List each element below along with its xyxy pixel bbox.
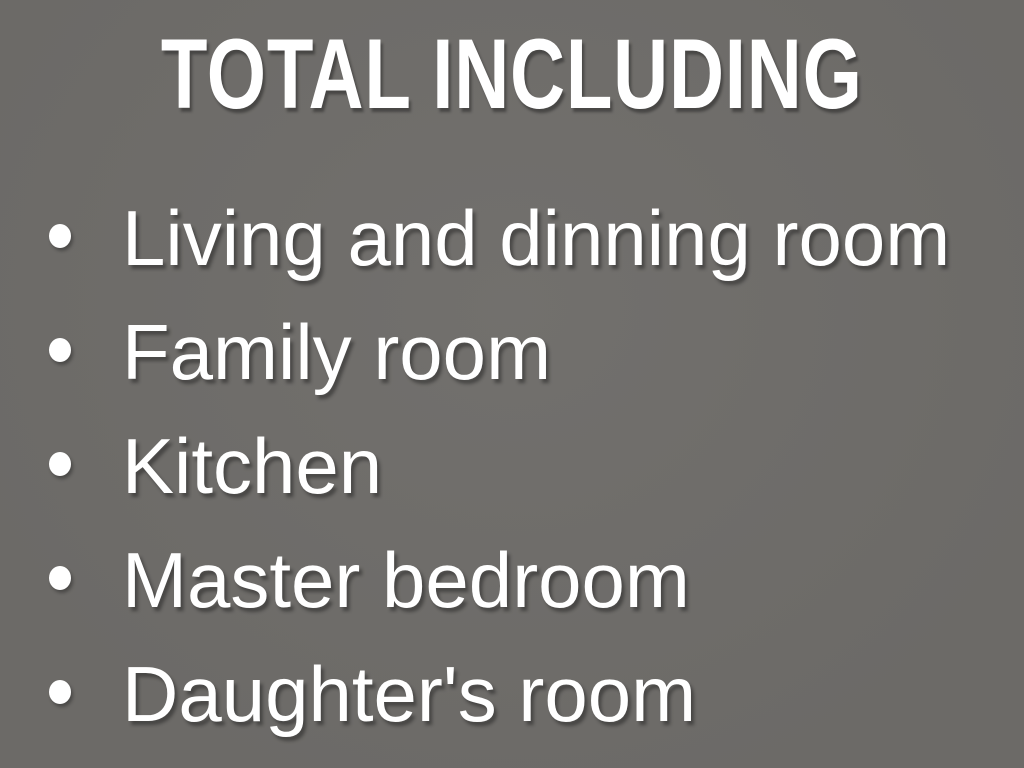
slide-title-text: TOTAL INCLUDING [161, 24, 863, 123]
list-item: Daughter's room [49, 637, 1014, 751]
bullet-dot-icon [49, 566, 71, 590]
bullet-dot-icon [49, 338, 71, 362]
bullet-list: Living and dinning room Family room Kitc… [49, 181, 1014, 751]
bullet-label: Kitchen [122, 427, 382, 505]
bullet-label: Family room [122, 313, 551, 391]
list-item: Living and dinning room [49, 181, 1014, 295]
bullet-label: Master bedroom [122, 541, 690, 619]
bullet-label: Living and dinning room [122, 199, 950, 277]
presentation-slide: TOTAL INCLUDING Living and dinning room … [0, 0, 1024, 768]
bullet-dot-icon [49, 680, 71, 704]
bullet-dot-icon [49, 224, 71, 248]
slide-title: TOTAL INCLUDING [0, 0, 1024, 123]
bullet-label: Daughter's room [122, 655, 696, 733]
bullet-dot-icon [49, 452, 71, 476]
list-item: Family room [49, 295, 1014, 409]
list-item: Kitchen [49, 409, 1014, 523]
list-item: Master bedroom [49, 523, 1014, 637]
